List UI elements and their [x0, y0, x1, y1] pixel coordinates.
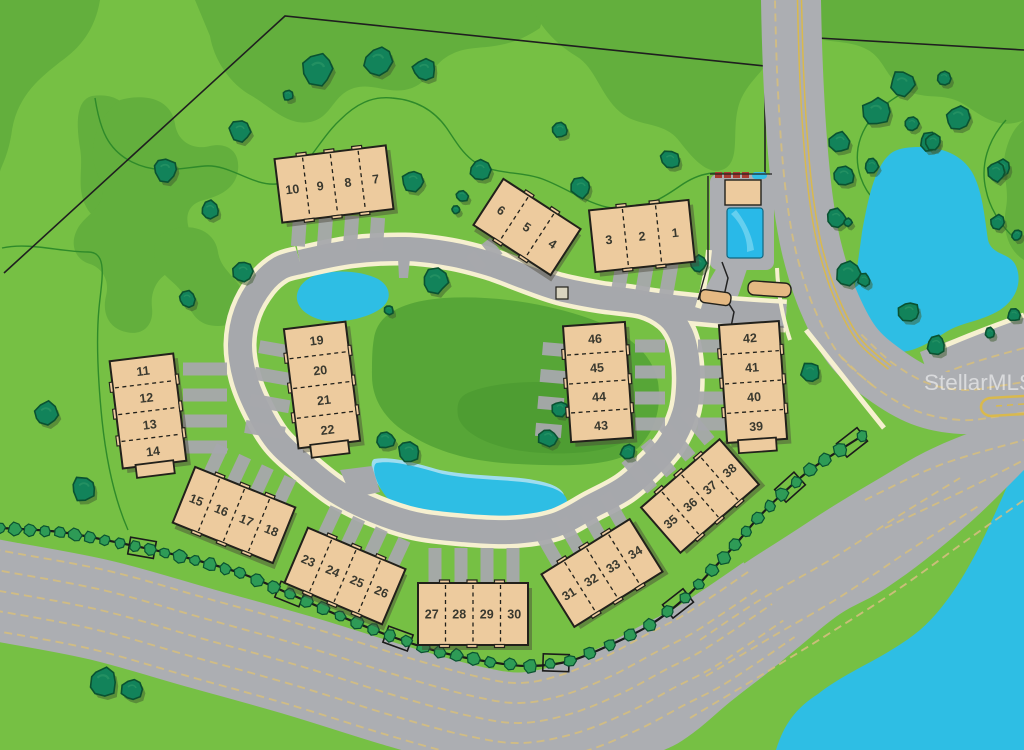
svg-text:45: 45	[590, 361, 605, 376]
svg-text:39: 39	[749, 419, 764, 434]
svg-text:27: 27	[425, 608, 439, 622]
svg-text:10: 10	[285, 182, 301, 198]
svg-text:41: 41	[745, 360, 760, 375]
svg-text:30: 30	[507, 608, 521, 622]
svg-text:11: 11	[136, 364, 151, 380]
svg-text:20: 20	[312, 363, 328, 379]
svg-text:19: 19	[309, 333, 325, 349]
svg-text:21: 21	[316, 393, 332, 409]
svg-text:43: 43	[594, 418, 609, 433]
svg-text:13: 13	[142, 417, 158, 433]
svg-text:42: 42	[743, 331, 758, 346]
svg-text:44: 44	[592, 389, 607, 404]
svg-text:28: 28	[452, 608, 466, 622]
svg-text:StellarMLS: StellarMLS	[924, 370, 1024, 395]
svg-text:46: 46	[588, 332, 603, 347]
svg-text:40: 40	[747, 390, 762, 405]
svg-text:29: 29	[480, 608, 494, 622]
svg-text:14: 14	[145, 444, 161, 460]
svg-text:22: 22	[320, 422, 336, 438]
svg-text:12: 12	[139, 390, 155, 406]
